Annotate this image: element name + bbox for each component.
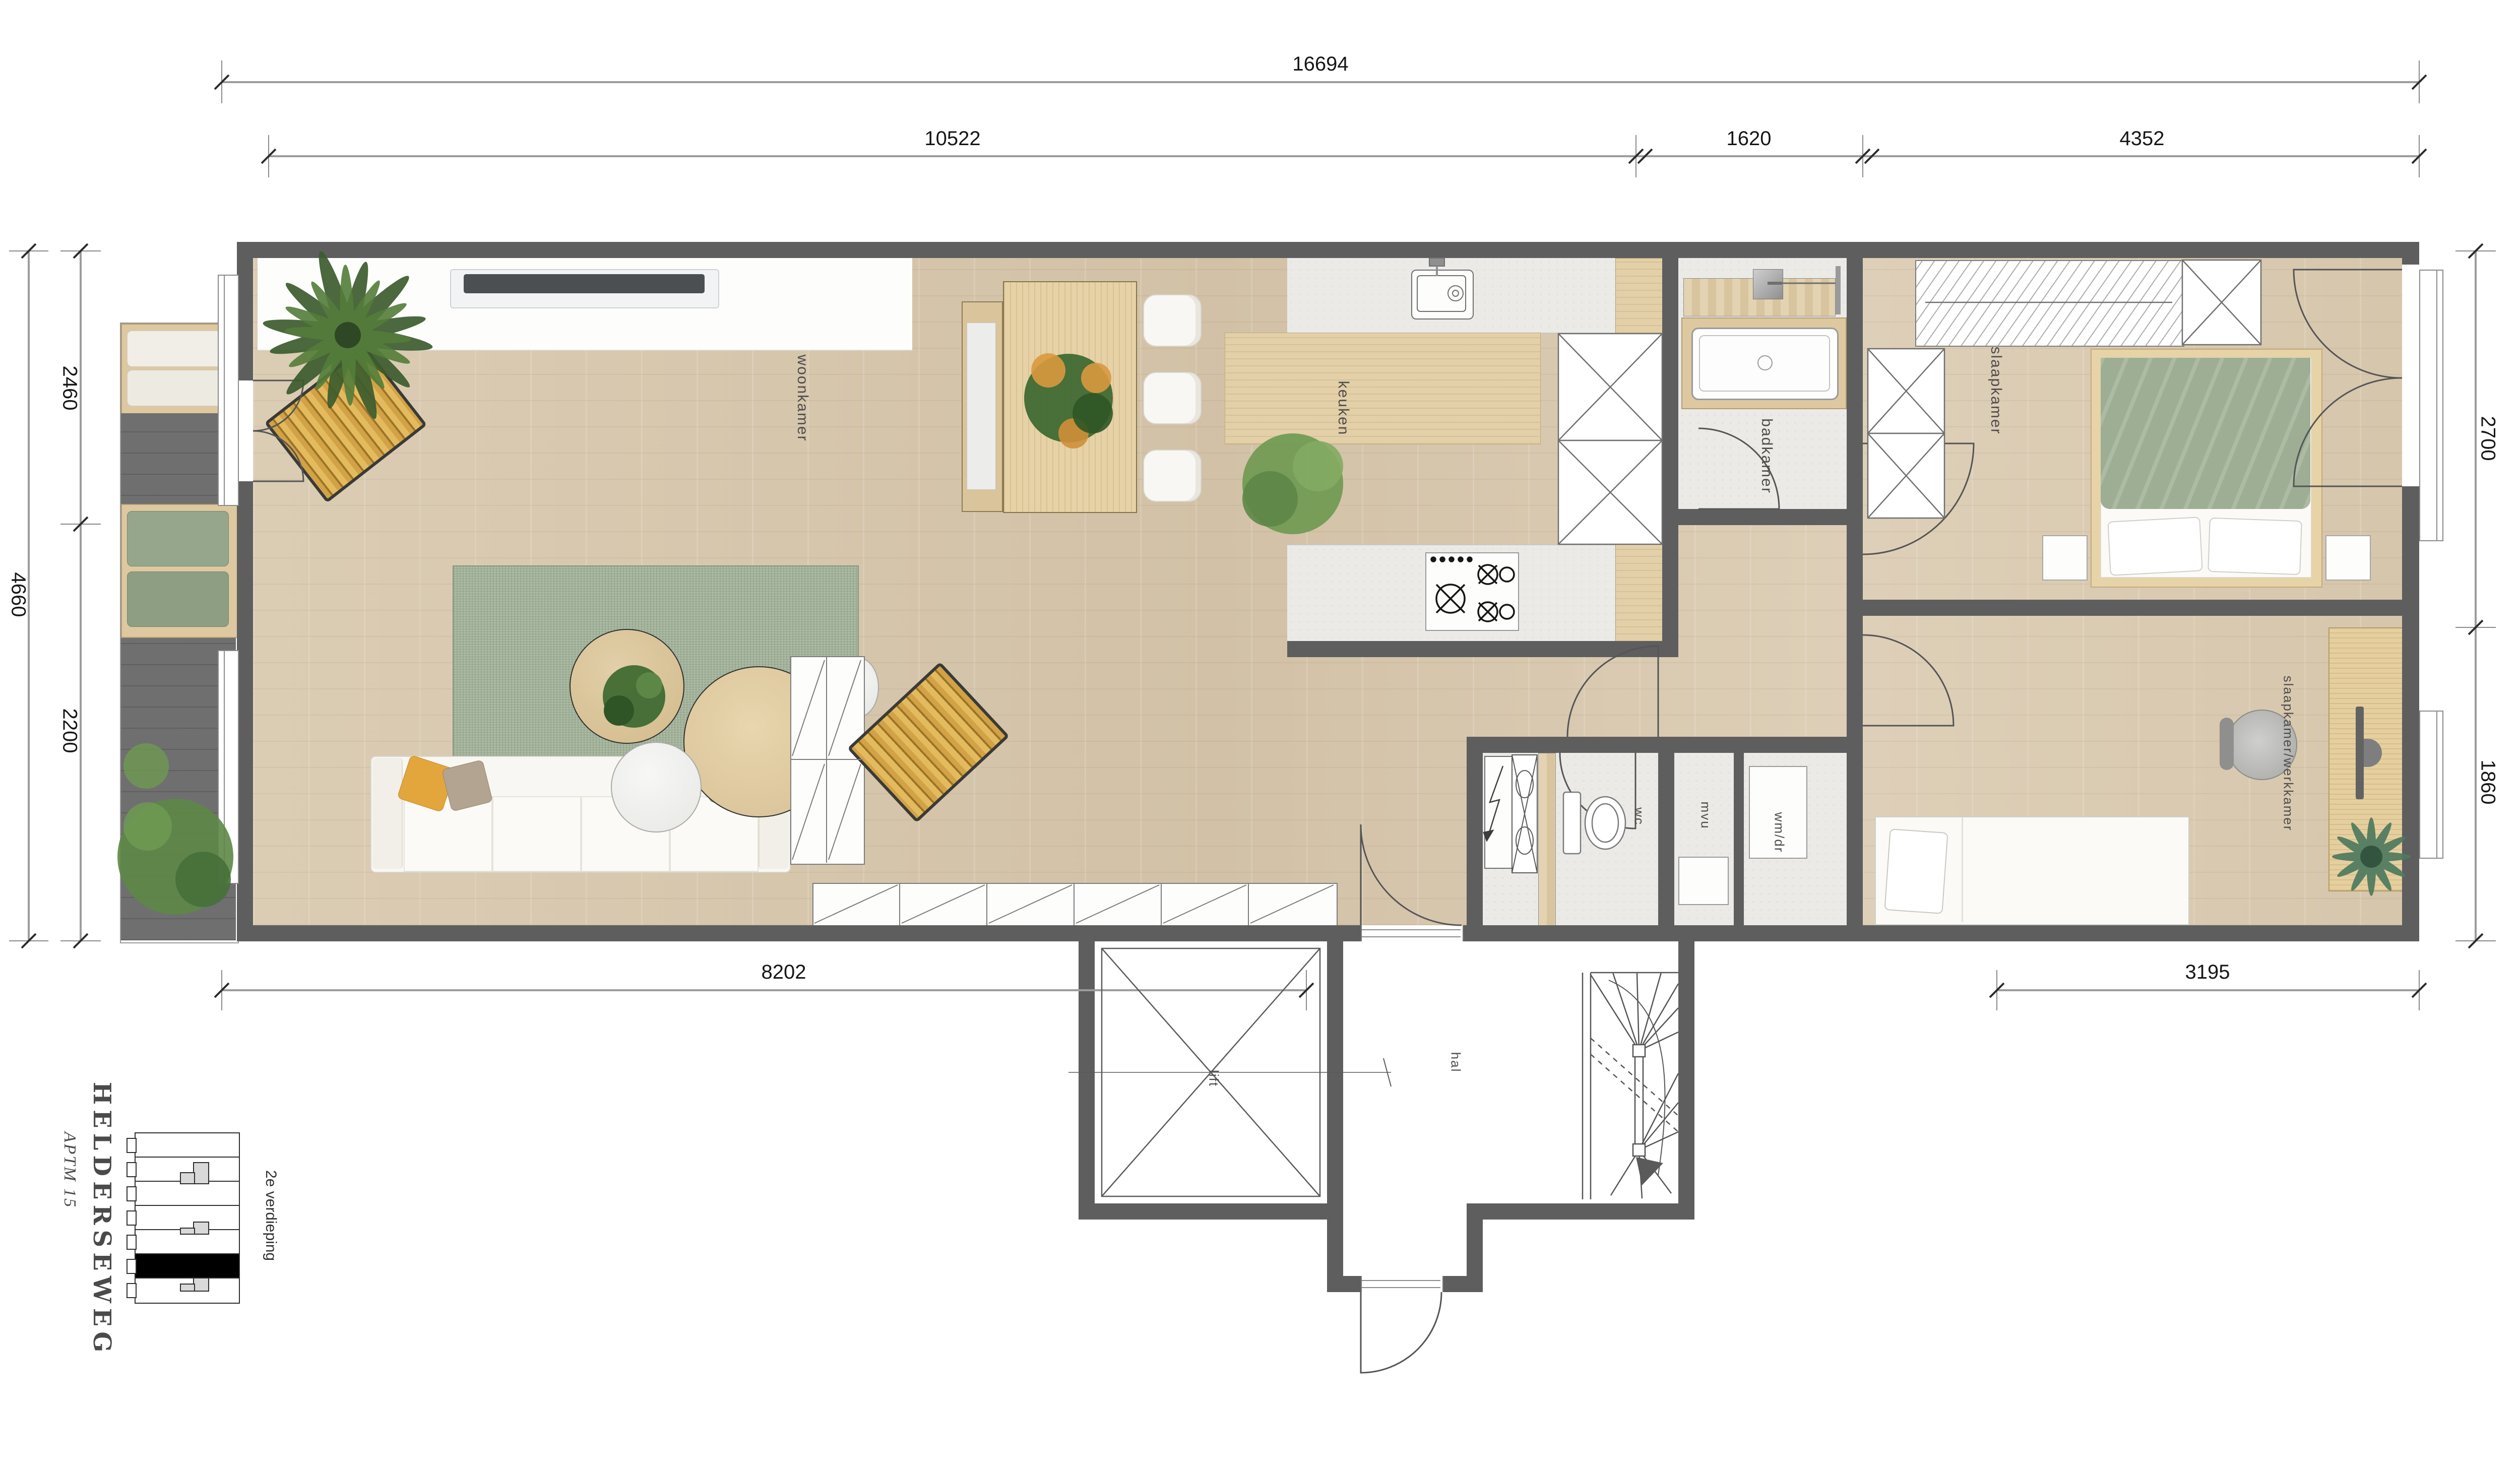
- sofa-seat-1: [404, 796, 492, 872]
- wardrobe-hatched: [1915, 260, 2184, 347]
- meter-cupboard: [1484, 756, 1514, 869]
- tv-icon: [464, 274, 705, 293]
- bed-single-foldline: [1962, 817, 1963, 922]
- wall-protrusion-right: [1678, 941, 1694, 1220]
- label-wc: wc: [1631, 807, 1647, 825]
- nightstand-left: [2042, 535, 2088, 581]
- label-storage: mvu: [1698, 801, 1714, 829]
- label-living: woonkamer: [794, 354, 811, 441]
- coffee-table-plant: [570, 629, 684, 744]
- kitchen-counter-end: [1615, 544, 1663, 642]
- window-right-lower: [2419, 711, 2443, 859]
- dim-seg-4352: 4352: [2120, 127, 2165, 150]
- dining-bench-cushion: [967, 323, 996, 490]
- wall-bottom: [237, 925, 2419, 941]
- wall-left: [237, 242, 253, 941]
- coffee-table-marble: [611, 742, 702, 833]
- hall-floor: [1343, 941, 1678, 1203]
- dim-seg-10522: 10522: [924, 127, 980, 150]
- sofa-arm-left: [372, 758, 403, 869]
- label-hall: hal: [1448, 1052, 1464, 1073]
- wall-bathroom-bottom: [1678, 509, 1863, 525]
- wall-kitchen-right: [1662, 258, 1678, 641]
- dim-seg-1620: 1620: [1727, 127, 1772, 150]
- stove: [1425, 552, 1519, 631]
- dining-chair-2: [1143, 372, 1202, 424]
- wall-kitchen-bottom: [1287, 641, 1678, 657]
- label-bedroom: slaapkamer: [1987, 346, 2004, 434]
- key-plan-highlight: [135, 1253, 240, 1280]
- wc-mosaic-strip: [1538, 753, 1556, 926]
- opening-entry: [1361, 925, 1464, 941]
- bed-single: [1875, 816, 2189, 925]
- opening-front-door: [1361, 1276, 1443, 1292]
- bed-pillow-left: [2107, 517, 2202, 575]
- sofa-seat-2: [492, 796, 581, 872]
- kitchen-island: [1225, 333, 1541, 444]
- label-lift: lift: [1206, 1070, 1222, 1087]
- kitchen-tall-cabinet: [1615, 258, 1663, 334]
- window-left-lower: [218, 650, 239, 884]
- label-bathroom: badkamer: [1758, 418, 1775, 493]
- balcony-cushion-green-2: [127, 571, 229, 627]
- bathtub: [1691, 328, 1839, 400]
- dining-chair-3: [1143, 450, 1202, 502]
- dim-left-2460: 2460: [58, 366, 81, 411]
- window-left-upper: [218, 275, 239, 506]
- wall-lift-right: [1327, 941, 1343, 1220]
- wall-bedroom-divider: [1863, 600, 2402, 616]
- wall-wc-right: [1658, 753, 1674, 925]
- cupboard-column: [790, 656, 865, 865]
- window-right-upper: [2419, 270, 2443, 541]
- label-bedroom-office: slaapkamer/werkkamer: [2281, 676, 2296, 832]
- bed-double: [2091, 349, 2322, 588]
- nightstand-right: [2325, 535, 2371, 581]
- dining-bench: [962, 301, 1003, 512]
- dining-chair-1: [1143, 294, 1202, 347]
- floor-plan: 16694 10522 1620 4352 4660 2460 2200 270…: [0, 0, 2520, 1471]
- balcony-cushion-white-2: [127, 370, 229, 406]
- wall-mvu-right: [1734, 753, 1744, 925]
- cupboard-row: [812, 883, 1338, 927]
- dim-left-total: 4660: [7, 572, 30, 617]
- wall-wcblock-top: [1467, 737, 1863, 753]
- shower-rail-icon: [1836, 266, 1841, 314]
- street-name: HELDERSEWEG: [88, 1082, 116, 1358]
- bed-single-pillow: [1884, 828, 1948, 914]
- label-kitchen: keuken: [1335, 381, 1352, 436]
- opening-balcony-doors: [237, 380, 253, 481]
- floor-name: 2e verdieping: [262, 1170, 279, 1261]
- apartment-number: APTM 15: [60, 1132, 79, 1208]
- dining-table: [1003, 281, 1137, 513]
- dim-left-2200: 2200: [58, 709, 81, 753]
- bathtub-drain: [1757, 355, 1773, 370]
- balcony-cushion-green-1: [127, 511, 229, 566]
- monitor-icon: [2356, 707, 2364, 799]
- label-laundry: wm/dr: [1772, 812, 1787, 853]
- storage-box: [1678, 857, 1729, 905]
- dim-top-total: 16694: [1292, 53, 1348, 76]
- opening-bedroom-balcony: [2402, 265, 2419, 486]
- shower-head-icon: [1753, 269, 1783, 299]
- desk-chair-back: [2220, 718, 2234, 770]
- wall-bedrooms-left: [1847, 258, 1863, 925]
- wall-lift-left: [1079, 941, 1095, 1220]
- dim-right-1860: 1860: [2477, 760, 2499, 805]
- dim-right-2700: 2700: [2477, 416, 2499, 461]
- wall-wcblock-left: [1467, 737, 1483, 925]
- bed-pillow-right: [2208, 518, 2302, 575]
- dim-bottom-8202: 8202: [762, 961, 806, 984]
- sink-basin: [1411, 270, 1474, 319]
- wall-lift-bottom: [1079, 1203, 1343, 1220]
- bed-duvet-green: [2101, 358, 2310, 509]
- wall-top: [237, 242, 2419, 258]
- dim-bottom-3195: 3195: [2185, 961, 2230, 984]
- wall-stairs-bottom: [1467, 1203, 1694, 1220]
- balcony-cushion-white-1: [127, 331, 229, 367]
